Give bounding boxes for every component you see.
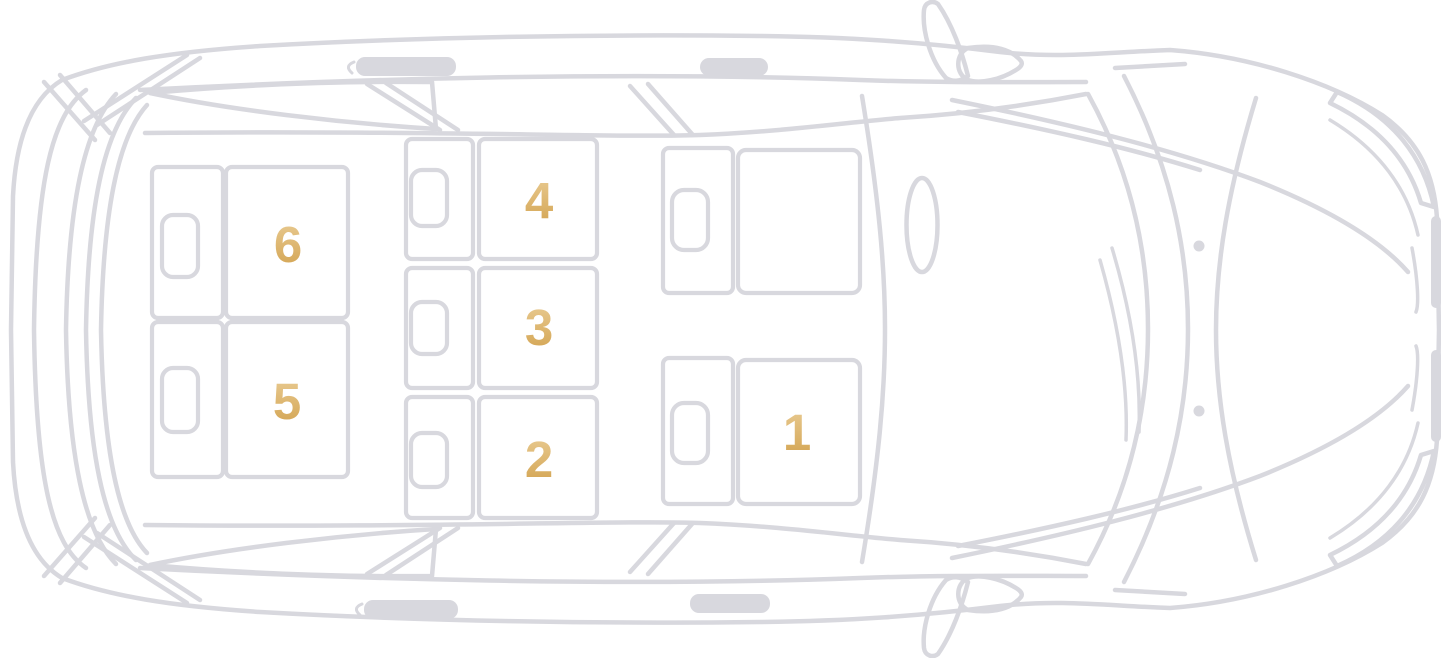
seat-number: 5 (273, 373, 301, 430)
seat-backrest (406, 397, 473, 518)
seat-4[interactable]: 4 (406, 139, 597, 259)
seat-cushion (738, 150, 860, 293)
b-pillar-top (648, 84, 692, 134)
seat-number: 1 (783, 404, 811, 461)
headrest-icon (672, 403, 708, 463)
washer-nozzle-dot (1194, 241, 1205, 252)
cowl-side-bottom (1115, 590, 1185, 594)
b-pillar-bottom (648, 524, 692, 574)
side-mirror-arm-bottom (924, 577, 968, 656)
driver-seat (663, 148, 860, 293)
seat-backrest (406, 268, 473, 388)
rear-corner-seam (60, 525, 110, 583)
steering-wheel-icon (907, 178, 938, 272)
door-handle-hook (356, 604, 362, 615)
seat-6[interactable]: 6 (152, 167, 348, 318)
headrest-icon (411, 170, 447, 226)
seat-1[interactable]: 1 (663, 358, 860, 504)
rear-window-inner (101, 105, 147, 553)
door-handle (700, 58, 768, 76)
car-top-view: 6 5 4 3 2 (0, 0, 1441, 658)
headrest-icon (411, 433, 447, 487)
washer-nozzle-dot (1194, 406, 1205, 417)
cowl-side-top (1115, 64, 1185, 68)
c-pillar-bottom (386, 528, 458, 575)
seat-backrest (406, 139, 473, 259)
rear-window-outer (86, 98, 136, 560)
rear-corner-seam (60, 75, 110, 133)
front-grille-sliver (1431, 216, 1441, 308)
front-grille-sliver (1431, 350, 1441, 442)
seat-3[interactable]: 3 (406, 268, 597, 388)
headrest-icon (411, 302, 447, 354)
door-handle-hook (348, 62, 354, 73)
seat-map: 6 5 4 3 2 (152, 139, 860, 518)
a-pillar-sweep-top (958, 112, 1200, 170)
seat-5[interactable]: 5 (152, 322, 348, 477)
dashboard-line (862, 96, 885, 562)
rear-bumper-crease (34, 90, 86, 568)
seat-number: 2 (525, 431, 553, 488)
door-handle (364, 600, 458, 619)
side-mirror-arm-top (924, 2, 968, 81)
front-bumper-detail (1412, 346, 1418, 410)
b-pillar-bottom (630, 523, 674, 572)
door-handle (690, 594, 770, 613)
headrest-icon (162, 215, 198, 277)
tailgate-edge (66, 94, 116, 564)
car-body-fills (356, 57, 1441, 619)
door-handle (356, 57, 456, 76)
b-pillar-top (630, 86, 674, 135)
car-seat-map: 6 5 4 3 2 (0, 0, 1441, 658)
seat-number: 4 (525, 172, 554, 229)
headrest-icon (162, 368, 198, 432)
front-bumper-detail (1412, 248, 1418, 312)
seat-number: 3 (525, 299, 553, 356)
a-pillar-sweep-bottom (958, 488, 1200, 546)
c-pillar-top (386, 83, 458, 130)
seat-2[interactable]: 2 (406, 397, 597, 518)
seat-number: 6 (274, 216, 302, 273)
headrest-icon (672, 190, 708, 250)
